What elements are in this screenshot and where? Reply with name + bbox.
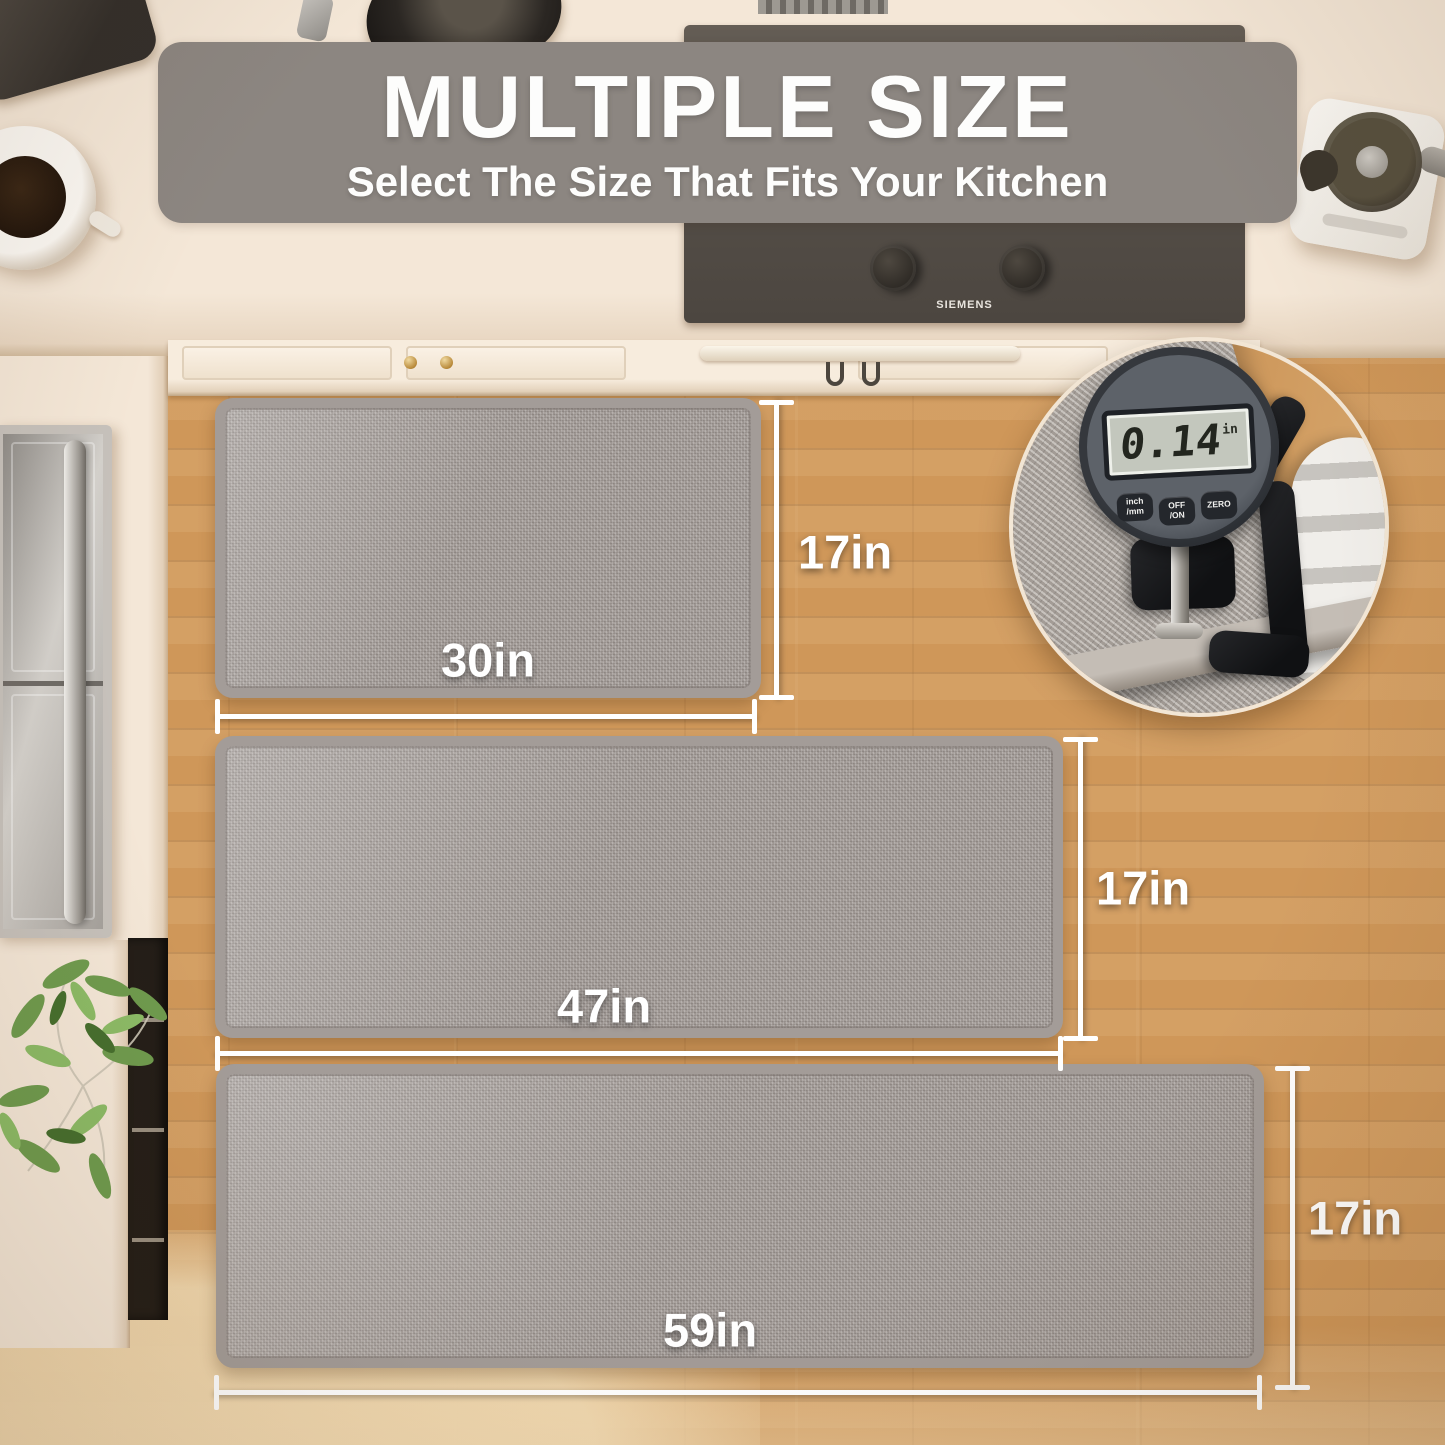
thickness-inset: 0.14 in inch /mm OFF /ON ZERO — [1009, 337, 1389, 717]
dim-label-mat2-height: 17in — [1096, 861, 1190, 916]
gauge-button-off-on: OFF /ON — [1158, 496, 1195, 526]
dim-line-mat3-height — [1290, 1066, 1295, 1390]
appliance-divider — [3, 681, 103, 686]
gauge-spindle-icon — [1171, 541, 1189, 627]
gauge-button-label: ZERO — [1207, 499, 1231, 510]
gauge-button-zero: ZERO — [1200, 490, 1237, 520]
size-banner: MULTIPLE SIZE Select The Size That Fits … — [158, 42, 1297, 223]
drawer-handle — [700, 346, 1020, 361]
gauge-unit: in — [1222, 421, 1238, 437]
dim-line-mat3-width — [214, 1390, 1262, 1395]
banner-title: MULTIPLE SIZE — [158, 56, 1297, 158]
gauge-button-label: /mm — [1126, 507, 1144, 518]
gauge-anvil-icon — [1155, 623, 1203, 639]
clamp-foot — [1208, 630, 1311, 679]
kitchen-product-scene: SIEMENS MULTIPLE SIZE Select The Size Th… — [0, 0, 1445, 1445]
dim-line-mat2-height — [1078, 737, 1083, 1041]
banner-subtitle: Select The Size That Fits Your Kitchen — [158, 158, 1297, 206]
cooktop-knob-icon — [870, 245, 916, 291]
kettle-cap — [1356, 146, 1388, 178]
towel-hook-icon — [862, 362, 880, 386]
dim-label-mat3-width: 59in — [663, 1303, 757, 1358]
cooktop-knob-icon — [999, 245, 1045, 291]
dim-line-mat1-width — [215, 714, 757, 719]
gauge-lcd: 0.14 in — [1101, 403, 1256, 481]
appliance-handle — [64, 440, 86, 924]
dim-label-mat3-height: 17in — [1308, 1191, 1402, 1246]
stainless-appliance — [0, 425, 112, 938]
dim-label-mat1-height: 17in — [798, 525, 892, 580]
dim-line-mat1-height — [774, 400, 779, 700]
potted-plant — [0, 946, 178, 1216]
shelf-line — [132, 1238, 164, 1242]
dim-label-mat2-width: 47in — [557, 979, 651, 1034]
cabinet-door — [406, 346, 626, 380]
cooktop-brand: SIEMENS — [684, 299, 1245, 311]
gauge-button-inch-mm: inch /mm — [1116, 492, 1153, 522]
cabinet-door — [182, 346, 392, 380]
gauge-button-label: /ON — [1169, 511, 1185, 522]
cabinet-knob — [404, 356, 417, 369]
gauge-reading: 0.14 — [1118, 419, 1223, 467]
dim-line-mat2-width — [215, 1051, 1063, 1056]
towel-hook-icon — [826, 362, 844, 386]
grate — [758, 0, 888, 14]
dim-label-mat1-width: 30in — [441, 633, 535, 688]
cabinet-knob — [440, 356, 453, 369]
